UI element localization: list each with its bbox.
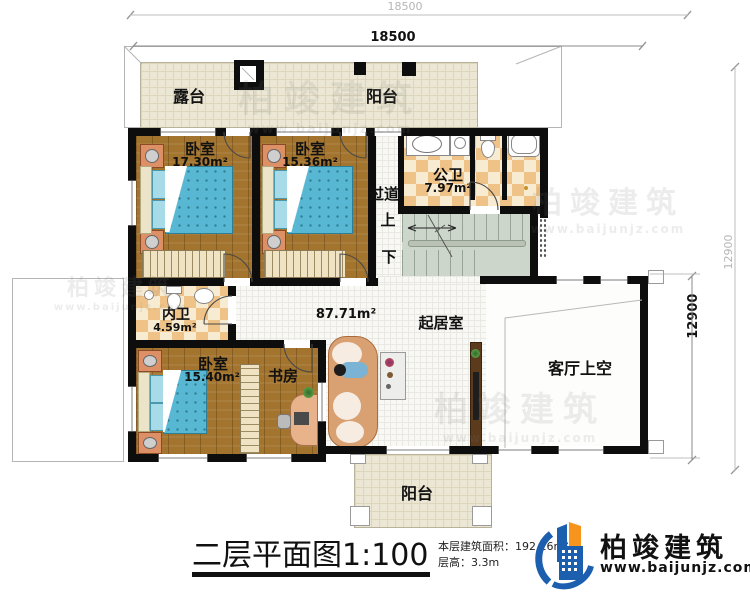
- sofa-cushion: [336, 421, 364, 443]
- window: [128, 180, 136, 226]
- window: [158, 454, 208, 462]
- stair-treads-lower: [402, 250, 482, 276]
- bedroom3-area: 15.40m²: [168, 371, 256, 384]
- window: [128, 386, 136, 432]
- study-monitor: [294, 412, 309, 425]
- nightstand: [138, 432, 162, 454]
- bed-sheet: [165, 166, 189, 232]
- study-chair: [277, 414, 291, 429]
- terrace-label: 露台: [159, 88, 219, 106]
- column-cap: [648, 270, 664, 284]
- living-room-label: 起居室: [406, 315, 476, 332]
- bedroom1-area: 17.30m²: [156, 156, 244, 169]
- bed-headboard: [262, 166, 274, 234]
- wall-bath-right: [540, 128, 548, 218]
- wall-bed2-corridor: [368, 136, 376, 286]
- inner-bath-area: 4.59m²: [140, 322, 210, 334]
- door-gap: [228, 296, 236, 324]
- door-knob-dot: [524, 186, 528, 190]
- window: [318, 382, 326, 422]
- window: [558, 446, 604, 454]
- column-cap: [350, 454, 366, 464]
- wall-void-right: [640, 284, 648, 454]
- bathtub-inner: [511, 134, 537, 154]
- column-cap: [472, 454, 488, 464]
- dim-right-inner: 12900: [687, 286, 701, 346]
- column-cap: [350, 506, 370, 526]
- table-item: [386, 384, 391, 389]
- door-gap: [226, 128, 250, 136]
- corridor-connector-floor: [378, 276, 486, 284]
- bedroom2-area: 15.36m²: [266, 156, 354, 169]
- window: [498, 446, 532, 454]
- floor-plan-canvas: 露台 阳台 卧室 17.30m² 卧室 15.36m² 公卫 7.97m² 过道…: [0, 0, 750, 596]
- sink: [412, 135, 442, 153]
- stair-down-label: 下: [379, 249, 399, 266]
- wardrobe: [264, 250, 346, 278]
- bed-sheet: [287, 166, 311, 232]
- study-label: 书房: [253, 368, 313, 385]
- tv-screen: [473, 372, 479, 420]
- dim-right-outer: 12900: [723, 222, 735, 282]
- window: [160, 128, 216, 136]
- stair-dots-panel: [539, 218, 548, 258]
- study-plant: [303, 387, 314, 398]
- dim-top-inner: 18500: [358, 31, 428, 45]
- door-gap: [340, 278, 366, 286]
- window: [276, 128, 332, 136]
- balcony-top-label: 阳台: [352, 88, 412, 106]
- stair-treads-upper: [402, 214, 530, 242]
- balcony-bottom-label: 阳台: [387, 485, 447, 503]
- sofa-cushion: [333, 392, 361, 420]
- bed-headboard: [140, 166, 152, 234]
- column-top-2: [402, 62, 416, 76]
- washer-drum: [454, 137, 466, 149]
- door-gap: [342, 128, 366, 136]
- person-head: [334, 364, 346, 376]
- window: [556, 276, 584, 284]
- door-gap: [470, 206, 500, 214]
- dim-top-outer: 18500: [375, 1, 435, 13]
- wardrobe: [142, 250, 226, 278]
- door-gap: [224, 278, 250, 286]
- stair-handrail: [408, 240, 526, 247]
- shower-head: [144, 290, 154, 300]
- door-gap: [284, 340, 310, 348]
- column-top-1: [354, 62, 366, 75]
- plan-title: 二层平面图1:100: [192, 530, 442, 574]
- table-item: [387, 372, 393, 378]
- stair-up-label: 上: [378, 212, 398, 229]
- logo-url: www.baijunjz.com: [600, 560, 750, 576]
- sliding-door: [386, 446, 450, 454]
- wall-bed1-bed2: [252, 136, 260, 286]
- table-flowers: [385, 358, 394, 367]
- void-label: 客厅上空: [538, 360, 622, 378]
- sink: [194, 288, 214, 304]
- column-cap: [648, 440, 664, 454]
- window: [246, 454, 292, 462]
- bath-partition: [502, 136, 507, 200]
- bed-headboard: [138, 372, 150, 432]
- corridor-label: 过道: [354, 186, 414, 203]
- column-cap: [472, 506, 492, 526]
- window: [600, 276, 628, 284]
- cabinet-plant: [471, 349, 480, 358]
- roof-outline-left: [12, 278, 124, 462]
- window: [374, 128, 402, 136]
- wall-stair-right: [530, 214, 538, 276]
- wall-bath-top: [398, 128, 548, 136]
- company-logo: [533, 518, 597, 590]
- logo-building-icon: [533, 518, 597, 590]
- chimney-inner: [240, 66, 256, 82]
- nightstand: [138, 350, 162, 372]
- living-room-area: 87.71m²: [306, 308, 386, 322]
- title-underline: [192, 572, 430, 577]
- public-bath-area: 7.97m²: [413, 182, 483, 195]
